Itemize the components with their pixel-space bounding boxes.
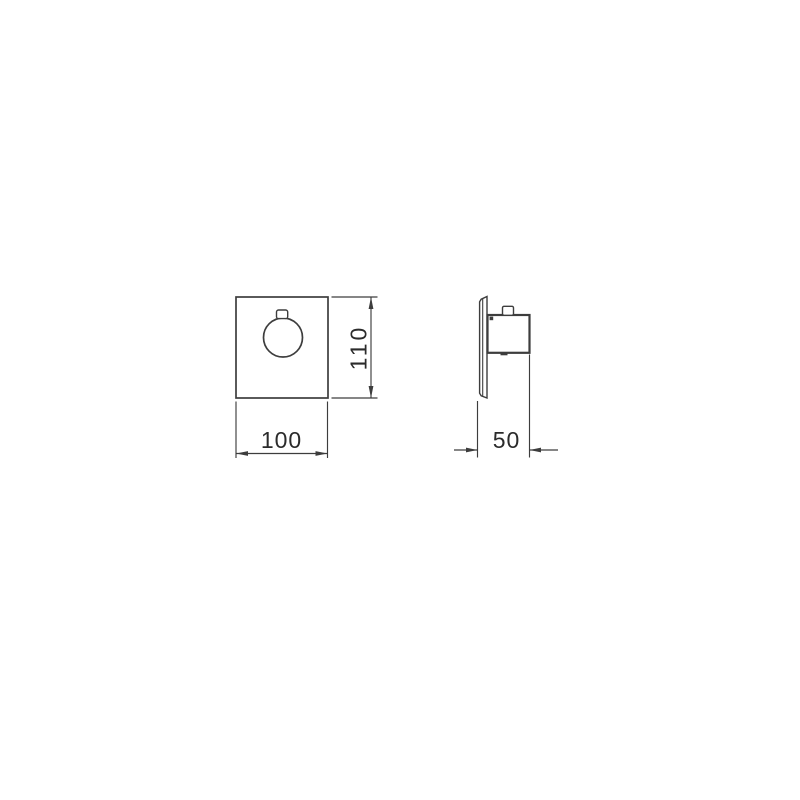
handle-detail-dot [490,317,494,321]
handle-grip-tab-front [277,310,288,319]
width-dimension: 100 [236,402,328,459]
width-arrow-right [316,451,328,456]
handle-side-outline [488,315,530,353]
technical-drawing-canvas: 110 100 50 [0,0,800,800]
height-dimension: 110 [332,297,378,398]
faceplate-side-outline [480,297,487,399]
handle-front-outline [264,318,303,357]
technical-drawing: 110 100 50 [0,0,800,800]
width-arrow-left [236,451,248,456]
depth-dimension: 50 [454,355,558,458]
width-dim-label: 100 [261,427,302,453]
front-view [236,297,328,398]
depth-arrow-right [530,448,542,453]
depth-dim-label: 50 [493,427,521,453]
height-dim-label: 110 [346,325,372,371]
height-arrow-top [369,297,374,309]
height-arrow-bottom [369,386,374,398]
side-view [480,297,530,399]
handle-grip-tab-side [503,306,514,315]
depth-arrow-left [466,448,478,453]
